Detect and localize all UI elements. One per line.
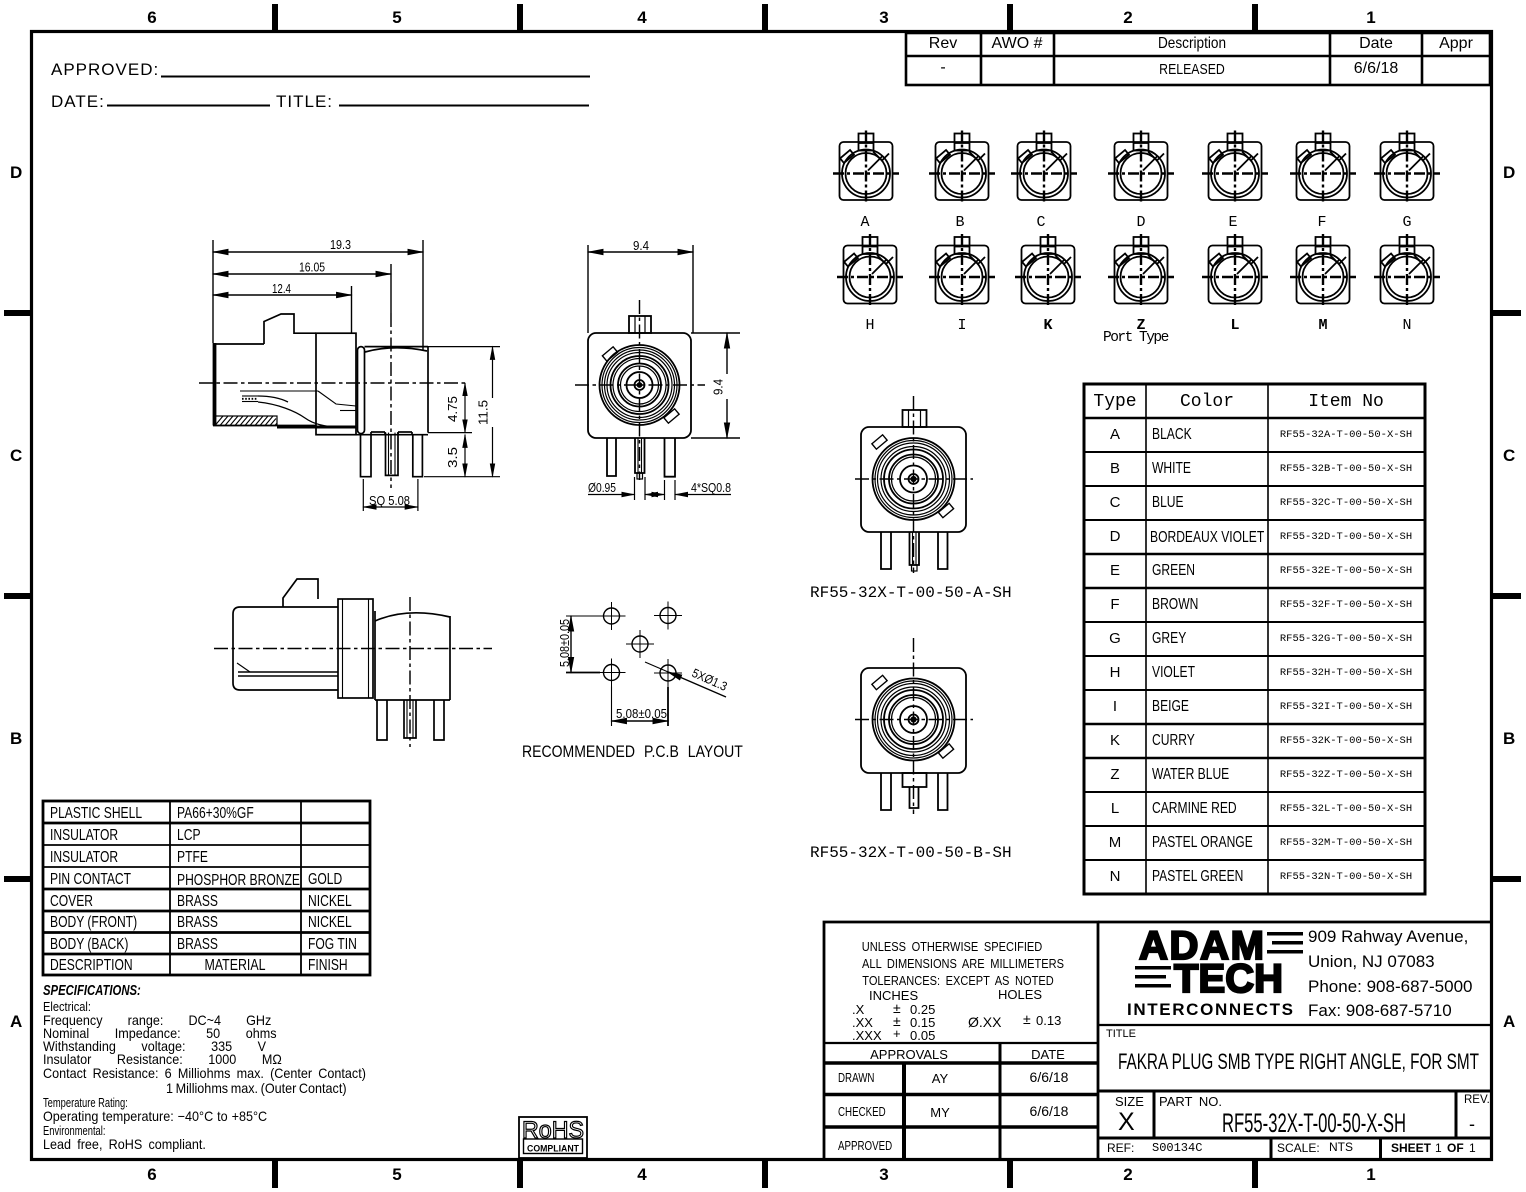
svg-text:5.08±0.05: 5.08±0.05 bbox=[616, 707, 667, 721]
svg-text:Ø0.95: Ø0.95 bbox=[588, 480, 616, 495]
svg-text:12.4: 12.4 bbox=[272, 281, 291, 296]
svg-text:9.4: 9.4 bbox=[633, 238, 649, 253]
svg-text:INTERCONNECTS: INTERCONNECTS bbox=[1127, 1000, 1293, 1019]
svg-text:FAKRA PLUG SMB TYPE RIGHT ANGL: FAKRA PLUG SMB TYPE RIGHT ANGLE, FOR SMT bbox=[1118, 1049, 1479, 1074]
svg-text:9.4: 9.4 bbox=[711, 379, 726, 395]
svg-text:COMPLIANT: COMPLIANT bbox=[527, 1144, 579, 1155]
svg-text:RF55-32X-T-00-50-X-SH: RF55-32X-T-00-50-X-SH bbox=[1222, 1108, 1406, 1138]
svg-text:4*SQ0.8: 4*SQ0.8 bbox=[691, 480, 731, 495]
svg-text:TECH: TECH bbox=[1174, 957, 1282, 1001]
svg-text:16.05: 16.05 bbox=[299, 260, 325, 275]
svg-text:RoHS: RoHS bbox=[522, 1117, 584, 1144]
svg-text:11.5: 11.5 bbox=[476, 400, 491, 425]
svg-text:5.08±0.05: 5.08±0.05 bbox=[558, 619, 572, 667]
svg-text:3.5: 3.5 bbox=[445, 447, 460, 468]
svg-text:19.3: 19.3 bbox=[330, 237, 351, 252]
svg-text:4.75: 4.75 bbox=[445, 396, 460, 422]
svg-text:SQ 5.08: SQ 5.08 bbox=[369, 493, 410, 508]
